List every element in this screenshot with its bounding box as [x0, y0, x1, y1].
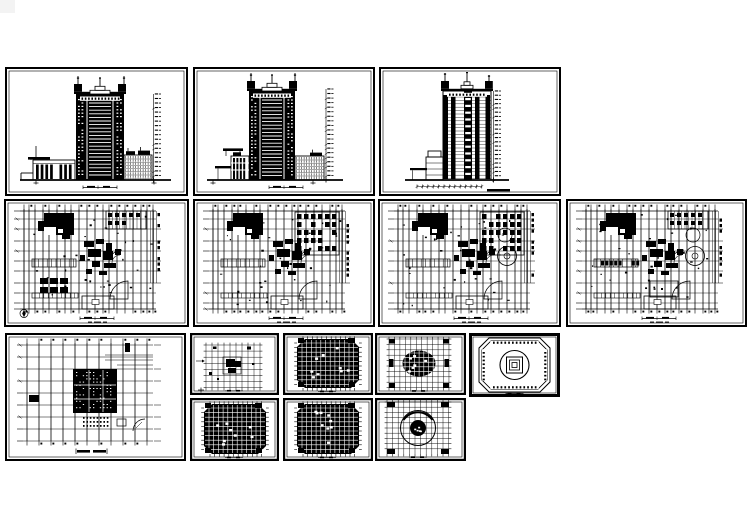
rear-elevation-drawing	[193, 67, 375, 196]
sheet-top-floor-circle-plan	[375, 398, 466, 461]
third-floor-plan-drawing	[378, 199, 561, 327]
standard-floor-plan-a-drawing	[283, 333, 373, 395]
sheet-ground-floor-plan	[4, 199, 189, 327]
sheet-rear-elevation	[193, 67, 375, 196]
sheet-machine-room-plan	[375, 333, 466, 395]
drawing-collage	[0, 0, 749, 530]
sheet-typical-plan-light	[190, 333, 279, 395]
sheet-roof-dome-plan	[469, 333, 560, 397]
front-elevation-drawing	[5, 67, 188, 196]
sheet-standard-floor-plan-c	[283, 398, 373, 461]
top-floor-circle-plan-drawing	[375, 398, 466, 461]
fourth-floor-plan-drawing	[566, 199, 747, 327]
sheet-standard-floor-plan-a	[283, 333, 373, 395]
sheet-standard-floor-plan-b	[190, 398, 279, 461]
second-floor-plan-drawing	[193, 199, 375, 327]
side-elevation-drawing	[379, 67, 561, 196]
sheet-podium-roof-tower-plan	[5, 333, 186, 461]
standard-floor-plan-b-drawing	[190, 398, 279, 461]
sheet-third-floor-plan	[378, 199, 561, 327]
sheet-front-elevation	[5, 67, 188, 196]
corner-artifact	[0, 0, 15, 13]
roof-dome-plan-drawing	[469, 333, 560, 397]
machine-room-plan-drawing	[375, 333, 466, 395]
sheet-side-elevation	[379, 67, 561, 196]
ground-floor-plan-drawing	[4, 199, 189, 327]
sheet-fourth-floor-plan	[566, 199, 747, 327]
podium-roof-tower-plan-drawing	[5, 333, 186, 461]
standard-floor-plan-c-drawing	[283, 398, 373, 461]
typical-plan-light-drawing	[190, 333, 279, 395]
sheet-second-floor-plan	[193, 199, 375, 327]
